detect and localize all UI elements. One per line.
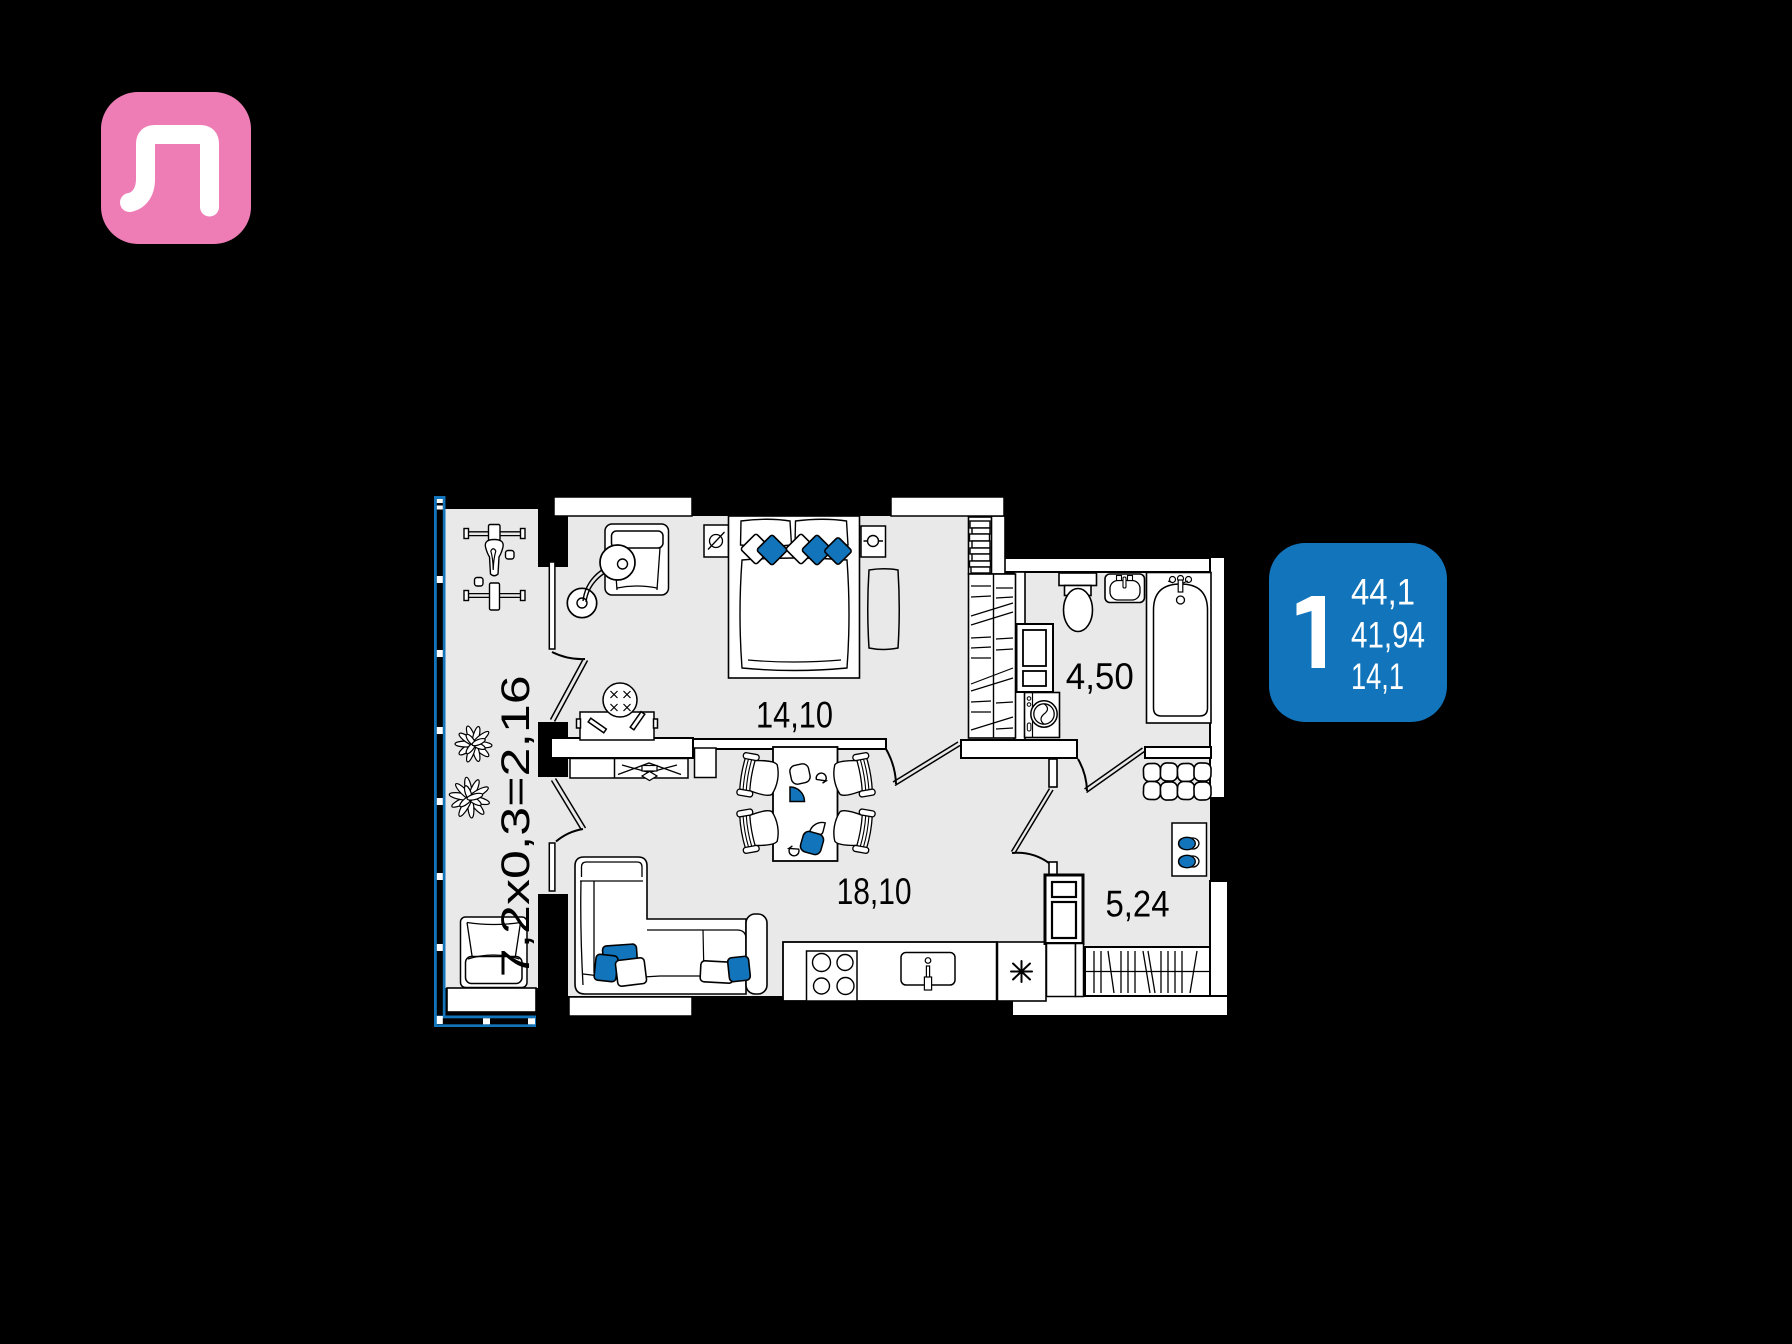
svg-text:18,10: 18,10 [837, 871, 912, 912]
svg-text:14,10: 14,10 [756, 695, 833, 736]
svg-text:14,1: 14,1 [1351, 656, 1404, 697]
svg-text:7,2x0,3=2,16: 7,2x0,3=2,16 [494, 675, 538, 977]
svg-text:41,94: 41,94 [1351, 614, 1425, 655]
svg-text:5,24: 5,24 [1106, 884, 1170, 925]
svg-text:4,50: 4,50 [1066, 656, 1134, 697]
svg-text:44,1: 44,1 [1351, 571, 1415, 612]
